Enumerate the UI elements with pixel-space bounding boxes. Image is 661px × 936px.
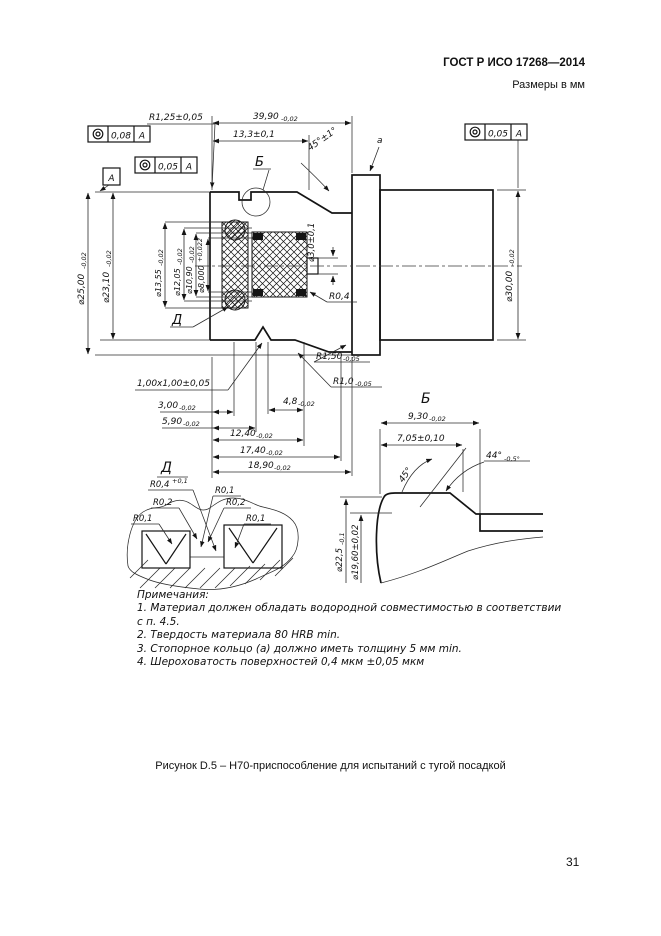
dim-d25: ⌀25,00 [77, 274, 87, 305]
dim-39-90: 39,90 [253, 112, 279, 122]
note-line: 4. Шероховатость поверхностей 0,4 мкм ±0… [137, 656, 567, 669]
dim-45: 45° [397, 466, 414, 485]
ring-reference-a: a [370, 136, 383, 171]
dim-d22-5: ⌀22,5 [335, 548, 345, 572]
dim-d3-0: ⌀3,0±0,1 [307, 223, 317, 262]
fcf-tolerance: 0,05 [158, 163, 178, 173]
fcf-datum: A [515, 130, 522, 140]
detail-b-view: Б 9,30 -0,02 7,05±0,10 45° 44° -0,5° ⌀22… [335, 391, 543, 583]
dim-9-30-tol: -0,02 [429, 415, 446, 423]
dim-r0-2-right: R0,2 [226, 498, 245, 508]
dim-d8-000: ⌀8,000 [197, 265, 206, 293]
fcf-datum: A [138, 132, 145, 142]
dim-12-40-tol: -0,02 [256, 432, 273, 440]
figure-caption: Рисунок D.5 – Н70-приспособление для исп… [0, 760, 661, 772]
concentricity-icon [473, 130, 477, 134]
note-line: 2. Твердость материала 80 HRB min. [137, 629, 567, 642]
dim-r0-4-groove: R0,4 [150, 480, 169, 490]
dim-3-00-tol: -0,02 [179, 404, 196, 412]
tooth-1 [142, 531, 190, 568]
fcf-tolerance: 0,05 [488, 130, 508, 140]
dim-d13-55-tol: -0,02 [157, 249, 165, 266]
note-line: 1. Материал должен обладать водородной с… [137, 602, 567, 629]
fcf-right-top: 0,05 A [465, 124, 527, 188]
detail-d-callout-label: Д [171, 313, 182, 328]
dim-d22-5-tol: -0,1 [338, 532, 346, 545]
dim-r0-4-groove-tol: +0,1 [172, 477, 188, 485]
dim-d10-90-tol: -0,02 [188, 246, 196, 263]
dim-d25-tol: -0,02 [80, 252, 88, 269]
dim-5-90-tol: -0,02 [183, 420, 200, 428]
dim-4-8-tol: -0,02 [298, 400, 315, 408]
page-number: 31 [566, 855, 579, 869]
dim-d19-60: ⌀19,60±0,02 [351, 525, 361, 581]
dim-4-8: 4,8 [283, 397, 298, 407]
concentricity-icon [143, 163, 147, 167]
ring-ref-label: a [377, 136, 383, 146]
dim-d12-05: ⌀12,05 [173, 268, 182, 296]
tooth-2 [224, 525, 282, 568]
datum-letter: A [107, 174, 114, 184]
dims-radii: R0,4 R1,50 -0,05 R1,0 -0,05 [298, 292, 382, 388]
dim-39-90-tol: -0,02 [281, 115, 298, 123]
detail-d-view: Д R0,4 +0,1 R0,2 R0,1 R0,1 R0,2 R0,1 [127, 460, 298, 590]
detail-b-callout-label: Б [255, 155, 264, 170]
dim-r0-2-left: R0,2 [153, 498, 172, 508]
knurled-insert-section [222, 220, 318, 310]
dim-r0-1-left: R0,1 [133, 514, 152, 524]
notes-heading: Примечания: [137, 589, 567, 602]
dim-9-30: 9,30 [408, 412, 428, 422]
dim-r1-25: R1,25±0,05 [149, 113, 203, 123]
dims-bottom: 1,00x1,00±0,05 3,00 -0,02 5,90 -0,02 4,8… [135, 307, 352, 478]
dim-3-00: 3,00 [158, 401, 178, 411]
dim-d23-10: ⌀23,10 [102, 272, 112, 303]
retaining-ring [352, 175, 380, 355]
concentricity-icon [93, 129, 103, 139]
dim-r0-1-right: R0,1 [246, 514, 265, 524]
dim-d23-10-tol: -0,02 [105, 250, 113, 267]
dim-d13-55: ⌀13,55 [154, 269, 163, 297]
dim-17-40-tol: -0,02 [266, 449, 283, 457]
concentricity-icon [96, 132, 100, 136]
dim-44: 44° [486, 451, 502, 461]
dim-45deg: 45°±1° [306, 126, 339, 154]
dim-d10-90: ⌀10,90 [185, 266, 194, 294]
dim-d30: ⌀30,00 [505, 271, 515, 302]
fcf-left-top: 0,08 A [88, 126, 150, 142]
dim-17-40: 17,40 [240, 446, 266, 456]
concentricity-icon [470, 127, 480, 137]
body-cylinder [380, 190, 493, 340]
dim-5-90: 5,90 [162, 417, 182, 427]
dim-7-05: 7,05±0,10 [397, 434, 445, 444]
datum-flag-a: A [100, 168, 120, 191]
dim-r0-1-top: R0,1 [215, 486, 234, 496]
fcf-left-mid: 0,05 A [135, 157, 197, 173]
dim-d12-05-tol: -0,02 [176, 248, 184, 265]
dim-d8-000-tol: +0,022 [196, 238, 204, 262]
dim-r0-4: R0,4 [329, 292, 350, 302]
detail-b-title: Б [421, 391, 431, 407]
dim-44-tol: -0,5° [504, 455, 520, 463]
dim-groove-1x1: 1,00x1,00±0,05 [137, 379, 210, 389]
detail-d-title: Д [160, 460, 172, 476]
notes-block: Примечания: 1. Материал должен обладать … [137, 589, 567, 669]
concentricity-icon [140, 160, 150, 170]
dim-18-90: 18,90 [248, 461, 274, 471]
dim-12-40: 12,40 [230, 429, 256, 439]
dim-13-3: 13,3±0,1 [233, 130, 275, 140]
dim-d30-tol: -0,02 [508, 249, 516, 266]
dim-r1-0: R1,0 [333, 377, 354, 387]
dim-18-90-tol: -0,02 [274, 464, 291, 472]
note-line: 3. Стопорное кольцо (а) должно иметь тол… [137, 643, 567, 656]
technical-drawing: 0,08 A 0,05 A 0,05 A A a 39,90 -0,02 13,… [0, 0, 661, 936]
fcf-tolerance: 0,08 [111, 132, 131, 142]
fcf-datum: A [185, 163, 192, 173]
oring-top [225, 220, 245, 240]
